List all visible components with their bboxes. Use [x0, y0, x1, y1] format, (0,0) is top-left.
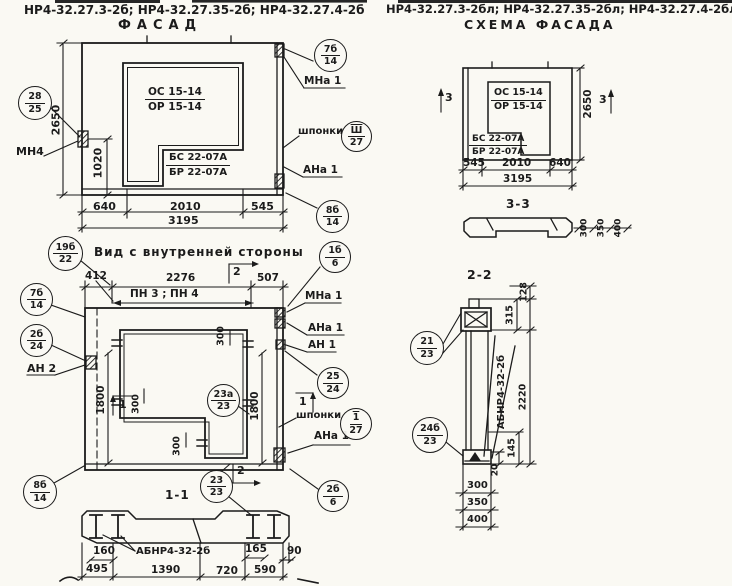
bubble-bottom: 27 [350, 137, 363, 148]
scheme-dim-640: 640 [549, 158, 571, 169]
window-mark-bottom: ОР 15-14 [491, 101, 546, 113]
facade-bubble-28-25: 28 25 [18, 86, 52, 120]
facade-bubble-8b-14: 8б 14 [316, 200, 349, 233]
inner-label-mna1: МНа 1 [305, 291, 342, 302]
door-mark-bottom: БР 22-07А [166, 166, 230, 179]
inner-label-pn: ПН 3 ; ПН 4 [130, 289, 199, 300]
section33-dim-350: 350 [598, 219, 607, 238]
inner-dim-1800-right: 1800 [250, 391, 261, 420]
bubble-top: 21 [417, 337, 436, 349]
section11-label-abnr: АБНР4-32-2б [136, 547, 210, 557]
door-mark-bottom: БР 22-07А [469, 146, 527, 157]
section-1-1-profile [82, 511, 289, 543]
section22-dim-400: 400 [467, 515, 488, 525]
section22-dim-128: 128 [519, 282, 529, 302]
inner-view-panel-outline [85, 308, 285, 470]
section11-dim-720: 720 [216, 566, 238, 577]
bubble-top: Ш [348, 126, 366, 138]
scheme-window-mark: ОС 15-14 ОР 15-14 [491, 88, 546, 113]
window-mark-top: ОС 15-14 [145, 86, 205, 100]
inner-bubble-7b-14: 7б 14 [20, 283, 53, 316]
bubble-bottom: 23 [217, 401, 230, 412]
section22-dim-300: 300 [467, 481, 488, 491]
scheme-title: СХЕМА ФАСАДА [464, 19, 616, 32]
scheme-section-mark-left: 3 [445, 92, 453, 103]
section11-dim-165: 165 [245, 544, 267, 555]
inner-dim-300-bottom: 300 [172, 436, 182, 456]
inner-bubble-25-24: 25 24 [317, 367, 349, 399]
inner-dim-1800-left: 1800 [96, 385, 107, 414]
bubble-bottom: 6 [332, 258, 339, 269]
section22-dim-350: 350 [467, 498, 488, 508]
bubble-top: 8б [30, 481, 49, 493]
bubble-bottom: 14 [30, 300, 43, 311]
drawing-sheet: НР4-32.27.3-2б; НР4-32.27.35-2б; НР4-32.… [0, 0, 732, 586]
bubble-bottom: 6 [330, 497, 337, 508]
bubble-top: 23а [211, 390, 237, 402]
section11-dim-590: 590 [254, 565, 276, 576]
section11-dim-1390: 1390 [151, 565, 180, 576]
bubble-top: 7б [27, 289, 46, 301]
bubble-top: 2б [323, 485, 342, 497]
inner-bubble-23a-23: 23а 23 [207, 384, 240, 417]
window-mark-top: ОС 15-14 [491, 88, 546, 101]
inner-bubble-19b-22: 19б 22 [48, 236, 83, 271]
bubble-top: 24б [417, 424, 443, 436]
inner-label-shponki: шпонки [296, 411, 341, 421]
inner-label-an1: АН 1 [308, 340, 336, 351]
section22-dim-145: 145 [507, 438, 517, 458]
inner-dim-507: 507 [257, 273, 279, 284]
scheme-dim-3195: 3195 [503, 174, 532, 185]
facade-bubble-sh-27: Ш 27 [341, 121, 372, 152]
facade-dim-640: 640 [93, 201, 116, 212]
scheme-dim-2650: 2650 [583, 89, 594, 118]
bubble-bottom: 23 [210, 487, 223, 498]
inner-bubble-23-23: 23 23 [200, 470, 233, 503]
header-right: НР4-32.27.3-2бл; НР4-32.27.35-2бл; НР4-3… [386, 4, 732, 16]
scheme-dim-545: 545 [463, 158, 485, 169]
section33-dim-300: 300 [581, 219, 590, 238]
bubble-top: 19б [53, 243, 79, 255]
section22-label-abnr: АБНР4-32-2б [497, 355, 507, 429]
scheme-section-mark-right: 3 [599, 94, 607, 105]
bubble-top: 28 [25, 92, 44, 104]
section22-dim-20: 20 [492, 464, 501, 477]
bubble-bottom: 25 [28, 104, 41, 115]
bubble-top: 7б [321, 45, 340, 57]
bubble-bottom: 23 [420, 349, 433, 360]
window-mark-bottom: ОР 15-14 [145, 100, 205, 113]
bubble-top: 8б [323, 206, 342, 218]
bubble-top: 23 [207, 476, 226, 488]
facade-dim-2650: 2650 [51, 105, 62, 136]
facade-dim-1020: 1020 [93, 148, 104, 179]
inner-label-an2: АН 2 [27, 363, 56, 374]
section22-bubble-24b-23: 24б 23 [412, 417, 448, 453]
facade-label-shponki: шпонки [298, 127, 343, 137]
facade-dim-2010: 2010 [170, 201, 201, 212]
scheme-dim-2010: 2010 [502, 158, 531, 169]
section33-dim-400: 400 [615, 219, 624, 238]
inner-bubble-2b-6: 2б 6 [317, 480, 349, 512]
bubble-bottom: 24 [30, 341, 43, 352]
scan-marks [60, 577, 318, 583]
facade-title: ФАСАД [118, 19, 202, 32]
bubble-top: 25 [323, 372, 342, 384]
bubble-bottom: 22 [59, 254, 72, 265]
section22-dim-2220: 2220 [518, 384, 528, 410]
inner-bubble-1b-6: 1б 6 [319, 241, 351, 273]
door-mark-top: БС 22-07А [166, 152, 230, 166]
scheme-dimension-lines [438, 65, 614, 190]
inner-label-ana1-top: АНа 1 [308, 323, 343, 334]
facade-dim-3195: 3195 [168, 215, 199, 226]
inner-dim-412: 412 [85, 271, 107, 282]
section11-dim-160: 160 [93, 546, 115, 557]
inner-section-mark-1-right: 1 [299, 396, 307, 407]
door-mark-top: БС 22-07А [469, 134, 527, 146]
inner-view-title: Вид с внутренней стороны [94, 246, 304, 258]
scheme-door-mark: БС 22-07А БР 22-07А [469, 134, 527, 158]
bubble-bottom: 14 [324, 56, 337, 67]
inner-section-mark-2-top: 2 [233, 266, 241, 277]
inner-dim-2276: 2276 [166, 273, 195, 284]
header-left: НР4-32.27.3-2б; НР4-32.27.35-2б; НР4-32.… [24, 4, 365, 16]
inner-bubble-8b-14: 8б 14 [23, 475, 57, 509]
inner-section-mark-1-left: 1 [119, 399, 127, 410]
section11-dim-495: 495 [86, 564, 108, 575]
section-1-1-title: 1-1 [165, 489, 190, 501]
bubble-top: 1 [350, 413, 363, 425]
facade-door-mark: БС 22-07А БР 22-07А [166, 152, 230, 178]
facade-dim-545: 545 [251, 201, 274, 212]
section22-dim-315: 315 [505, 305, 515, 325]
facade-bubble-7b-14: 7б 14 [314, 39, 347, 72]
section22-bubble-21-23: 21 23 [410, 331, 444, 365]
facade-label-ana1: АНа 1 [303, 165, 338, 176]
section-2-2-title: 2-2 [467, 269, 493, 282]
bubble-bottom: 23 [423, 436, 436, 447]
section11-dim-90: 90 [287, 546, 302, 557]
bubble-top: 2б [27, 330, 46, 342]
bubble-bottom: 24 [326, 384, 339, 395]
inner-bubble-2b-24: 2б 24 [20, 324, 53, 357]
bubble-bottom: 14 [33, 493, 46, 504]
bubble-bottom: 27 [349, 425, 362, 436]
facade-label-mn4: МН4 [16, 146, 44, 157]
bubble-bottom: 14 [326, 217, 339, 228]
section-3-3-title: 3-3 [506, 198, 531, 210]
inner-bubble-1-27: 1 27 [340, 408, 372, 440]
bubble-top: 1б [325, 246, 344, 258]
drawing-linework [0, 0, 732, 586]
inner-dim-300-left: 300 [131, 394, 141, 414]
facade-window-mark: ОС 15-14 ОР 15-14 [145, 86, 205, 113]
inner-dim-300-top: 300 [216, 326, 226, 346]
inner-section-mark-2-bottom: 2 [237, 465, 245, 476]
facade-label-mna1: МНа 1 [304, 76, 341, 87]
